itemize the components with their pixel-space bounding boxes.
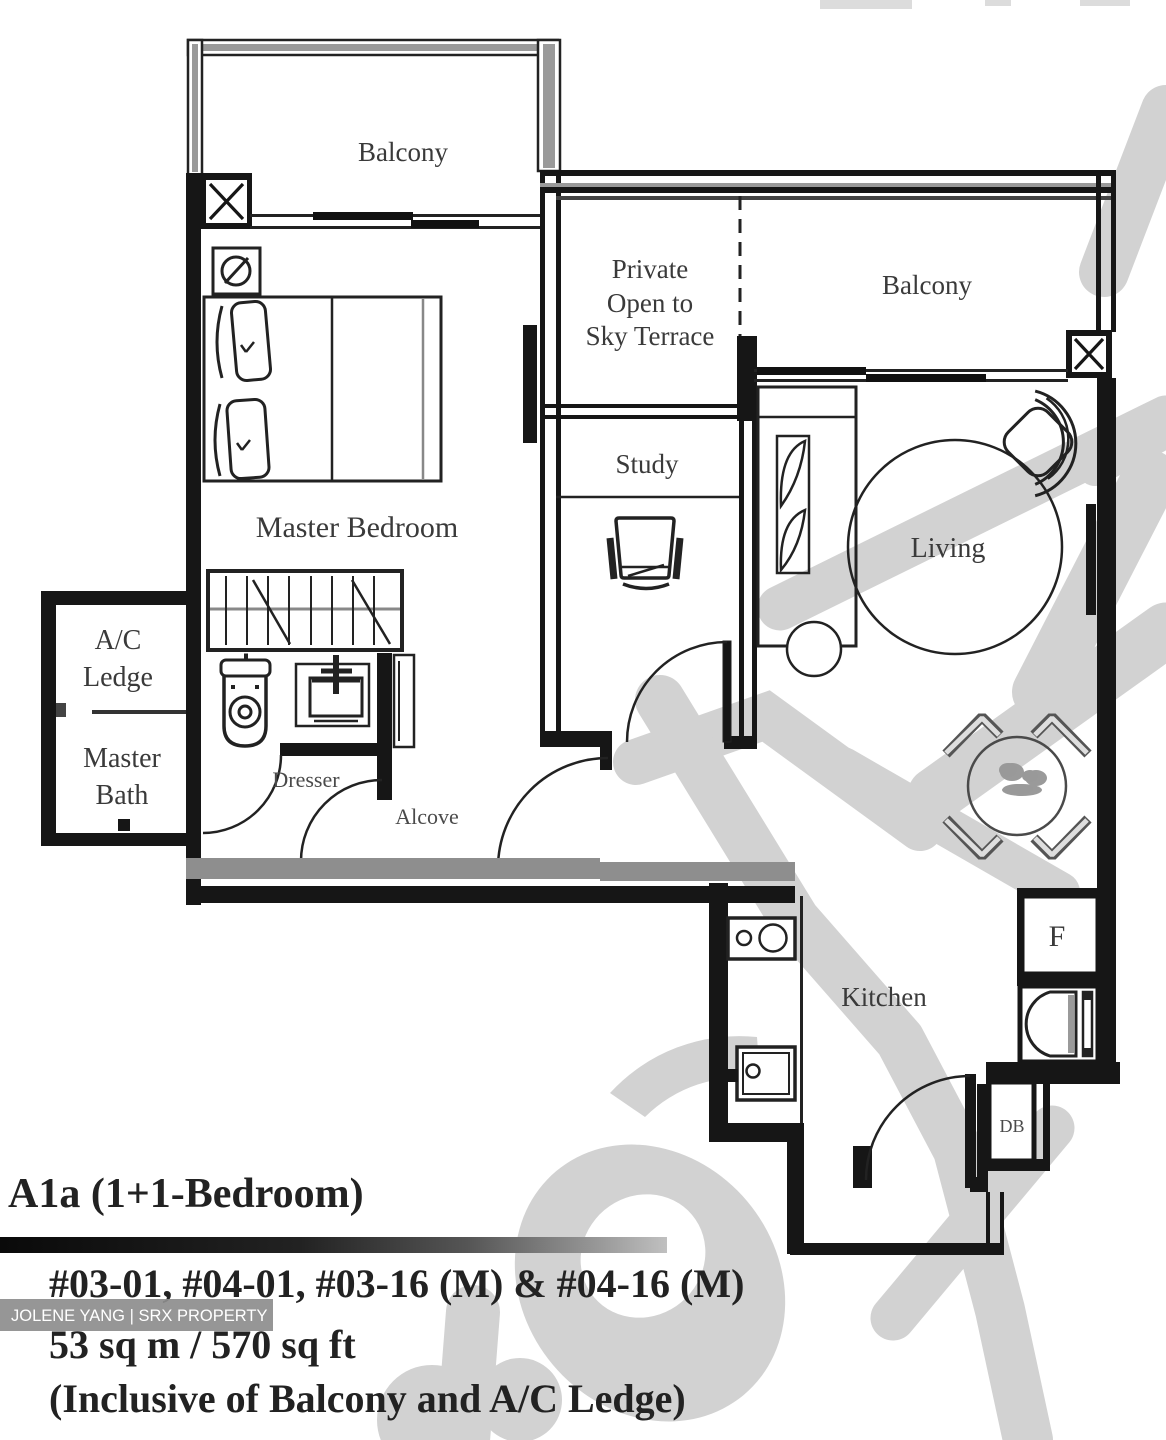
svg-text:A1a (1+1-Bedroom): A1a (1+1-Bedroom) <box>8 1171 364 1217</box>
svg-text:Open to: Open to <box>607 288 693 318</box>
svg-text:F: F <box>1049 920 1066 953</box>
svg-text:A/C: A/C <box>95 625 142 656</box>
svg-text:Master: Master <box>83 743 161 774</box>
svg-text:(Inclusive of Balcony and A/C: (Inclusive of Balcony and A/C Ledge) <box>49 1376 686 1421</box>
svg-text:Sky Terrace: Sky Terrace <box>586 321 715 351</box>
svg-text:Alcove: Alcove <box>395 804 459 829</box>
svg-text:Living: Living <box>911 533 986 564</box>
svg-text:Ledge: Ledge <box>83 662 153 693</box>
svg-text:Private: Private <box>612 254 688 284</box>
svg-text:Bath: Bath <box>96 780 149 811</box>
svg-text:Balcony: Balcony <box>358 137 448 167</box>
svg-text:Study: Study <box>615 449 679 479</box>
svg-text:Kitchen: Kitchen <box>841 982 927 1012</box>
svg-text:DB: DB <box>999 1116 1024 1136</box>
svg-text:JOLENE YANG | SRX PROPERTY: JOLENE YANG | SRX PROPERTY <box>11 1307 267 1325</box>
svg-text:Balcony: Balcony <box>882 270 972 300</box>
svg-text:Dresser: Dresser <box>272 767 340 792</box>
svg-text:Master Bedroom: Master Bedroom <box>256 511 458 544</box>
